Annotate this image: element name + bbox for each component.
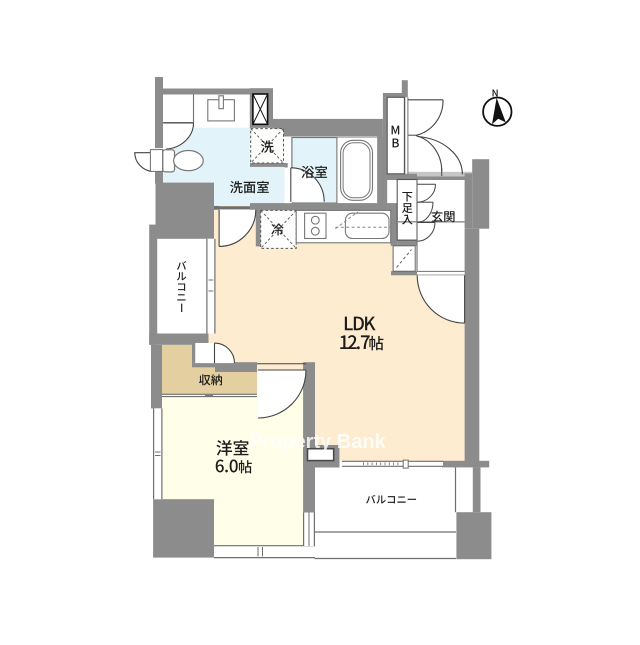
svg-text:Property Bank: Property Bank — [249, 431, 387, 453]
